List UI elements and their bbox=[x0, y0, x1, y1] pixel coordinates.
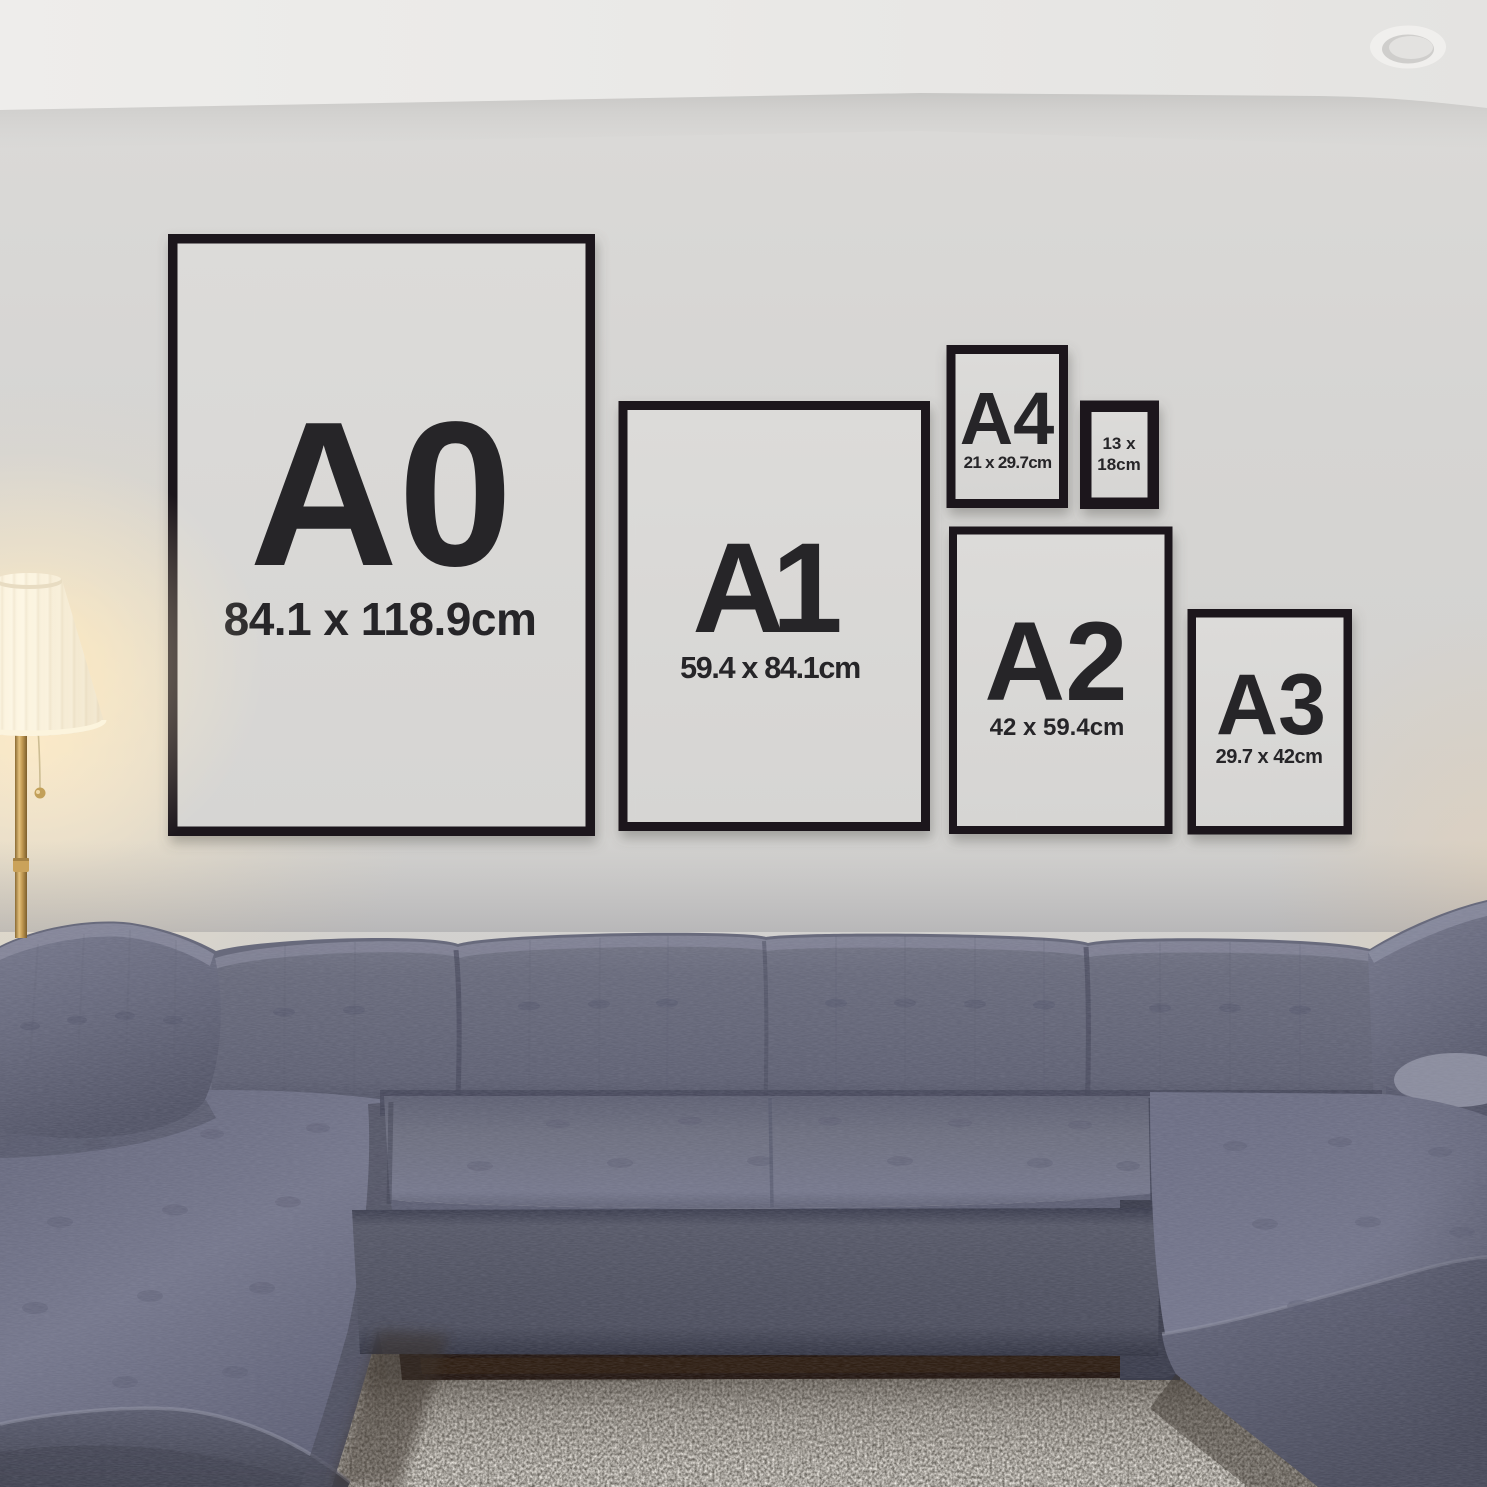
svg-text:A0: A0 bbox=[249, 379, 512, 609]
svg-text:13 x: 13 x bbox=[1102, 434, 1136, 453]
svg-text:A2: A2 bbox=[984, 599, 1127, 724]
svg-text:A4: A4 bbox=[960, 377, 1055, 460]
svg-text:21 x 29.7cm: 21 x 29.7cm bbox=[964, 453, 1052, 472]
svg-text:84.1 x 118.9cm: 84.1 x 118.9cm bbox=[224, 593, 537, 645]
svg-text:A1: A1 bbox=[692, 517, 839, 660]
svg-text:18cm: 18cm bbox=[1097, 455, 1140, 474]
svg-text:59.4 x 84.1cm: 59.4 x 84.1cm bbox=[680, 651, 860, 685]
svg-text:42 x 59.4cm: 42 x 59.4cm bbox=[990, 714, 1125, 741]
svg-text:29.7 x 42cm: 29.7 x 42cm bbox=[1216, 746, 1323, 768]
svg-text:A3: A3 bbox=[1216, 657, 1326, 753]
